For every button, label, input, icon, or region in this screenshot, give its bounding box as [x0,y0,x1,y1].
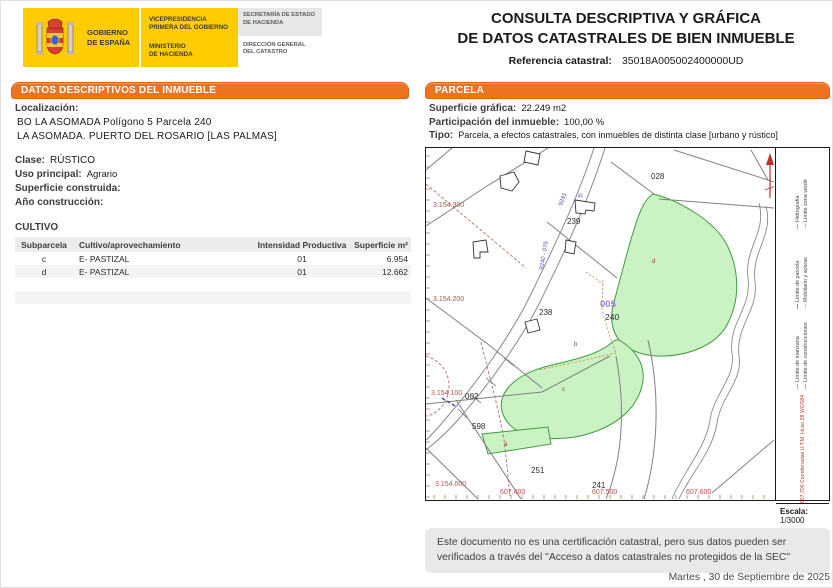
tipo-label: Tipo: [429,130,453,141]
table-row-empty [15,291,411,304]
coord-x-607600: 607.600 [686,489,711,496]
coord-y-3154300: 3.154.300 [433,202,464,209]
polygon-code-label: 005 [600,299,617,310]
legend-group-3: — Límite de manzana — Límite de construc… [796,313,810,389]
escala-label: Escala: [780,507,825,516]
secretaria-estado-label: SECRETARÍA DE ESTADO DE HACIENDA [238,8,322,36]
table-row: c E- PASTIZAL 01 6.954 [15,252,411,265]
col-header-superficie: Superficie m² [351,240,411,250]
cell-subparcela: d [15,267,73,277]
map-legend: — Hidrografía — Límite zona verde — Lími… [775,147,830,501]
government-logo-block: GOBIERNO DE ESPAÑA VICEPRESIDENCIA PRIME… [23,8,238,67]
document-title-line1: CONSULTA DESCRIPTIVA Y GRÁFICA [421,9,831,29]
parcel-label-251: 251 [531,466,545,475]
cadastral-map-box: 028 239 238 002 598 251 241 005 240 d c … [425,147,776,501]
cadastral-map: 028 239 238 002 598 251 241 005 240 d c … [426,148,774,499]
cell-intensidad: 01 [253,254,351,264]
subparcel-d: d [652,259,655,265]
coord-y-3154200: 3.154.200 [433,296,464,303]
uso-principal-value: Agrario [87,169,118,180]
parcel-label-028: 028 [651,172,665,181]
cell-cultivo: E- PASTIZAL [73,267,253,277]
subparcel-c: c [562,387,565,393]
escala-value: 1/3000 [780,516,825,525]
legend-entry-limite-manzana: — Límite de manzana [796,313,801,389]
subject-parcel-label: 240 [605,312,619,322]
referencia-catastral-value: 35018A005002400000UD [622,55,743,67]
clase-value: RÚSTICO [50,155,95,166]
utm-coordinates-note: 607.700 Coordenadas U.T.M. Huso 28 WGS84 [800,395,806,503]
spain-coat-of-arms-icon [23,8,87,67]
cultivo-title: CULTIVO [15,222,409,233]
referencia-catastral-label: Referencia catastral: [509,55,612,67]
scale-box: Escala: 1/3000 [776,503,829,528]
gobierno-de-espana-label: GOBIERNO DE ESPAÑA [87,8,139,67]
document-date: Martes , 30 de Septiembre de 2025 [425,572,830,583]
superficie-grafica-label: Superficie gráfica: [429,103,516,114]
table-row-empty [15,304,411,317]
building-number-label: 42 [577,193,584,200]
participacion-label: Participación del inmueble: [429,117,559,128]
subject-parcel-polygons [482,194,737,454]
referencia-catastral: Referencia catastral:35018A005002400000U… [421,55,831,67]
government-header: GOBIERNO DE ESPAÑA VICEPRESIDENCIA PRIME… [23,8,322,67]
direccion-general-label: DIRECCIÓN GENERAL DEL CATASTRO [238,36,322,68]
coord-y-3154100: 3.154.100 [431,390,462,397]
cell-intensidad: 01 [253,267,351,277]
legend-entry-zona-verde: — Límite zona verde [804,153,809,229]
cultivo-table: Subparcela Cultivo/aprovechamiento Inten… [15,237,411,317]
tipo-value: Parcela, a efectos catastrales, con inmu… [458,130,778,140]
superficie-construida-label: Superficie construida: [15,183,121,194]
table-row: d E- PASTIZAL 01 12.662 [15,265,411,278]
parcel-label-239: 239 [567,217,581,226]
legend-group-2: — Límite de parcela — Mobiliario y acera… [796,233,810,309]
coord-x-607400: 607.400 [500,489,525,496]
vicepresidencia-label: VICEPRESIDENCIA PRIMERA DEL GOBIERNO [149,16,238,32]
participacion-value: 100,00 % [564,117,604,128]
section-header-datos-descriptivos: DATOS DESCRIPTIVOS DEL INMUEBLE [11,82,409,99]
uso-principal-label: Uso principal: [15,169,82,180]
legend-group-1: — Hidrografía — Límite zona verde [796,153,810,229]
parcel-label-598: 598 [472,422,486,431]
document-title-block: CONSULTA DESCRIPTIVA Y GRÁFICA DE DATOS … [421,9,831,67]
localizacion-label: Localización: [15,103,78,114]
parcel-label-002: 002 [465,392,479,401]
cell-superficie: 12.662 [351,267,411,277]
parcel-label-238: 238 [539,308,553,317]
table-row-empty [15,278,411,291]
col-header-intensidad: Intensidad Productiva [253,240,351,250]
legend-entry-mobiliario: — Mobiliario y aceras [804,233,809,309]
cultivo-table-header: Subparcela Cultivo/aprovechamiento Inten… [15,237,411,252]
anio-construccion-label: Año construcción: [15,197,103,208]
disclaimer-note: Este documento no es una certificación c… [425,528,830,573]
ministerio-label: MINISTERIO DE HACIENDA [149,43,238,59]
localizacion-line2: LA ASOMADA. PUERTO DEL ROSARIO [LAS PALM… [17,131,409,142]
road-code-label-1: 9240 - 079 [539,240,550,270]
superficie-grafica-value: 22.249 m2 [521,103,566,114]
cell-cultivo: E- PASTIZAL [73,254,253,264]
section-header-parcela: PARCELA [425,82,830,99]
legend-entry-hidrografia: — Hidrografía [796,153,801,229]
col-header-cultivo: Cultivo/aprovechamiento [73,240,253,250]
coord-y-3154000: 3.154.000 [435,481,466,488]
cadastral-document-page: GOBIERNO DE ESPAÑA VICEPRESIDENCIA PRIME… [0,0,833,588]
cell-subparcela: c [15,254,73,264]
subparcel-b: b [574,342,578,348]
legend-entry-limite-parcela: — Límite de parcela [796,233,801,309]
document-title-line2: DE DATOS CATASTRALES DE BIEN INMUEBLE [421,29,831,49]
clase-label: Clase: [15,155,45,166]
datos-descriptivos-panel: Localización: BO LA ASOMADA Polígono 5 P… [15,103,409,317]
road-code-label-2: 9241 [558,191,568,206]
cell-superficie: 6.954 [351,254,411,264]
north-arrow-icon [765,153,774,198]
localizacion-line1: BO LA ASOMADA Polígono 5 Parcela 240 [17,117,409,128]
building-outlines [473,151,595,333]
parcela-panel: Superficie gráfica:22.249 m2 Participaci… [429,103,831,144]
col-header-subparcela: Subparcela [15,240,73,250]
coord-x-607500: 607.500 [592,489,617,496]
legend-entry-limite-construcciones: — Límite de construcciones [804,313,809,389]
